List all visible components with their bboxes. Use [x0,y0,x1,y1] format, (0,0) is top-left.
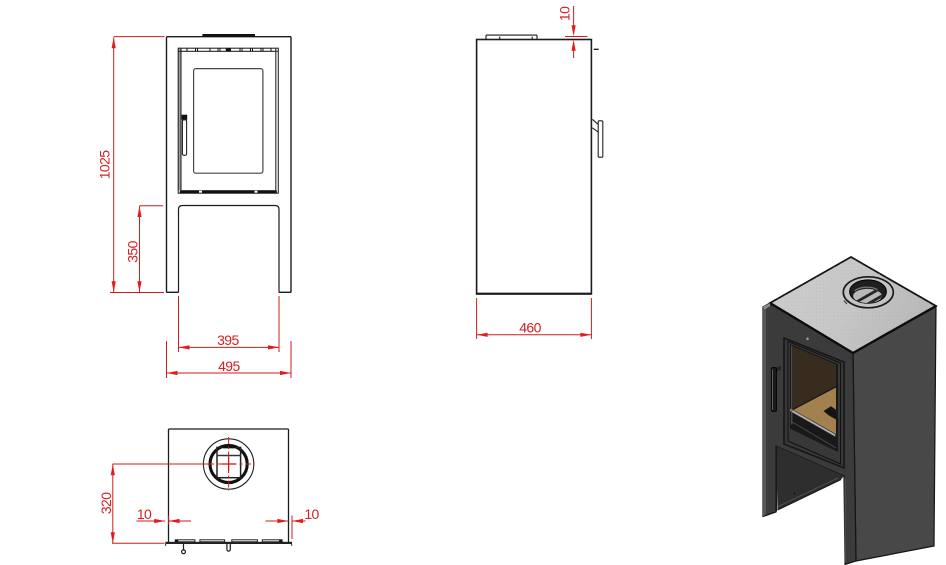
svg-text:395: 395 [217,332,239,348]
svg-text:460: 460 [519,319,541,335]
svg-text:10: 10 [137,506,152,522]
svg-text:10: 10 [304,506,319,522]
svg-text:1025: 1025 [96,150,112,180]
svg-text:10: 10 [557,6,573,21]
svg-text:495: 495 [218,358,240,374]
svg-text:320: 320 [98,492,114,514]
svg-text:350: 350 [125,240,141,262]
